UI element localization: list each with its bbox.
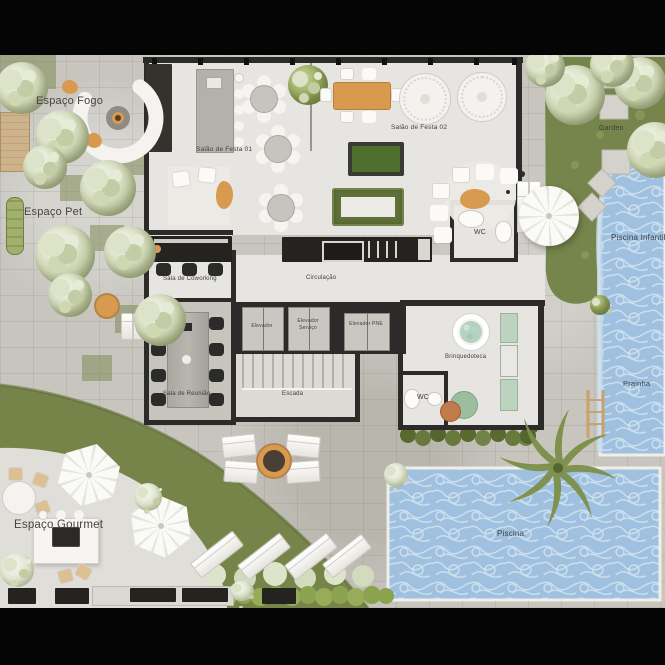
plaza-lounger: [223, 460, 258, 484]
meeting-chairs-right: [209, 317, 224, 330]
label-garden: Garden: [599, 125, 624, 132]
toy-shelf: [500, 379, 518, 411]
dining-table: [267, 194, 295, 222]
party-table: [457, 72, 507, 122]
toy-shelf: [500, 313, 518, 343]
billiard-table: [348, 142, 404, 176]
roof-light: [428, 58, 433, 65]
fridge: [418, 239, 430, 260]
table-items: [182, 355, 191, 364]
label-sala-coworking: Sala de Coworking: [163, 276, 217, 282]
gourmet-table: [2, 481, 36, 515]
label-wc-brinquedoteca: WC: [417, 394, 429, 401]
label-sala-reuniao: Sala de Reunião: [163, 391, 210, 397]
label-piscina-infantil: Piscina Infantil: [611, 233, 665, 242]
chairs: [340, 111, 354, 123]
label-espaco-gourmet: Espaço Gourmet: [14, 519, 103, 531]
shrub: [230, 581, 254, 601]
party-table: [399, 73, 451, 125]
roof-light: [474, 58, 479, 65]
label-elevador-pne: Elevador PNE: [347, 321, 385, 328]
tree: [23, 145, 67, 189]
dining-table-orange: [333, 82, 391, 110]
dining-table: [250, 85, 278, 113]
plaza-lounger: [221, 433, 257, 458]
bench: [8, 588, 36, 604]
label-prainha: Prainha: [623, 379, 650, 388]
roof-light: [512, 58, 517, 65]
wall: [398, 302, 403, 430]
counter-unit: [130, 588, 176, 602]
shrub: [590, 295, 610, 315]
wc-toilet: [495, 221, 512, 243]
counter-unit: [182, 588, 228, 602]
label-piscina: Piscina: [497, 529, 524, 538]
tree: [134, 294, 186, 346]
tree: [48, 273, 92, 317]
stair-steps: [242, 354, 352, 388]
pet-lounger: [121, 313, 133, 340]
shrub: [384, 463, 408, 487]
roof-light: [382, 58, 387, 65]
plaza-lounger: [285, 460, 320, 484]
grass-tile: [82, 355, 112, 381]
corridor-floor: [235, 255, 545, 302]
wicker-chair: [8, 467, 23, 481]
planter-shrub: [0, 553, 34, 587]
plaza-lounger: [285, 433, 321, 458]
label-salao-festa-01: Salão de Festa 01: [196, 146, 252, 153]
label-circulacao: Circulação: [306, 275, 336, 281]
wall: [400, 300, 545, 306]
label-espaco-fogo: Espaço Fogo: [36, 95, 103, 107]
ball-pit: [452, 313, 490, 351]
label-espaco-pet: Espaço Pet: [24, 206, 82, 218]
wall: [355, 348, 360, 422]
wc-sink: [427, 392, 442, 406]
label-elevador-servico: Elevador Serviço: [291, 318, 325, 331]
wall: [398, 371, 448, 375]
desk-top: [154, 239, 228, 243]
wall: [144, 420, 236, 425]
chairs: [340, 68, 354, 80]
office-chairs: [156, 263, 171, 276]
label-salao-festa-02: Salão de Festa 02: [391, 124, 447, 131]
wall: [450, 258, 518, 262]
tree: [104, 226, 156, 278]
dining-table: [264, 135, 292, 163]
site-plan: Espaço Fogo Espaço Pet Salão de Festa 01…: [0, 55, 665, 608]
pet-tunnel: [6, 197, 24, 255]
roof-light: [290, 58, 295, 65]
toy-shelf: [500, 345, 518, 377]
elevator-pne-door: [344, 313, 390, 351]
label-escada: Escada: [282, 391, 303, 397]
pouf: [440, 401, 461, 422]
shrub: [134, 483, 162, 511]
planter-island: [332, 188, 404, 226]
bench: [262, 588, 296, 604]
roof-light: [336, 58, 341, 65]
chair: [320, 88, 332, 102]
pet-table: [94, 293, 120, 319]
label-brinquedoteca: Brinquedoteca: [445, 354, 486, 360]
umbrella: [519, 186, 579, 246]
wall: [145, 230, 233, 235]
tree: [80, 160, 136, 216]
cooktop: [322, 241, 364, 262]
fire-table: [258, 445, 290, 477]
stair-landing-line: [242, 388, 352, 390]
floor-lamp: [519, 171, 525, 177]
floor-plan-image: Espaço Fogo Espaço Pet Salão de Festa 01…: [0, 0, 665, 665]
sofa-modules: [452, 167, 470, 183]
cabinet-slats: [368, 241, 398, 258]
wall: [232, 417, 360, 422]
palm-tree: [500, 410, 616, 526]
bench: [55, 588, 89, 604]
label-elevador: Elevador: [245, 323, 279, 330]
label-wc-festa: WC: [474, 229, 486, 236]
wc-sink: [458, 210, 484, 228]
sofa-modules: [432, 183, 450, 199]
